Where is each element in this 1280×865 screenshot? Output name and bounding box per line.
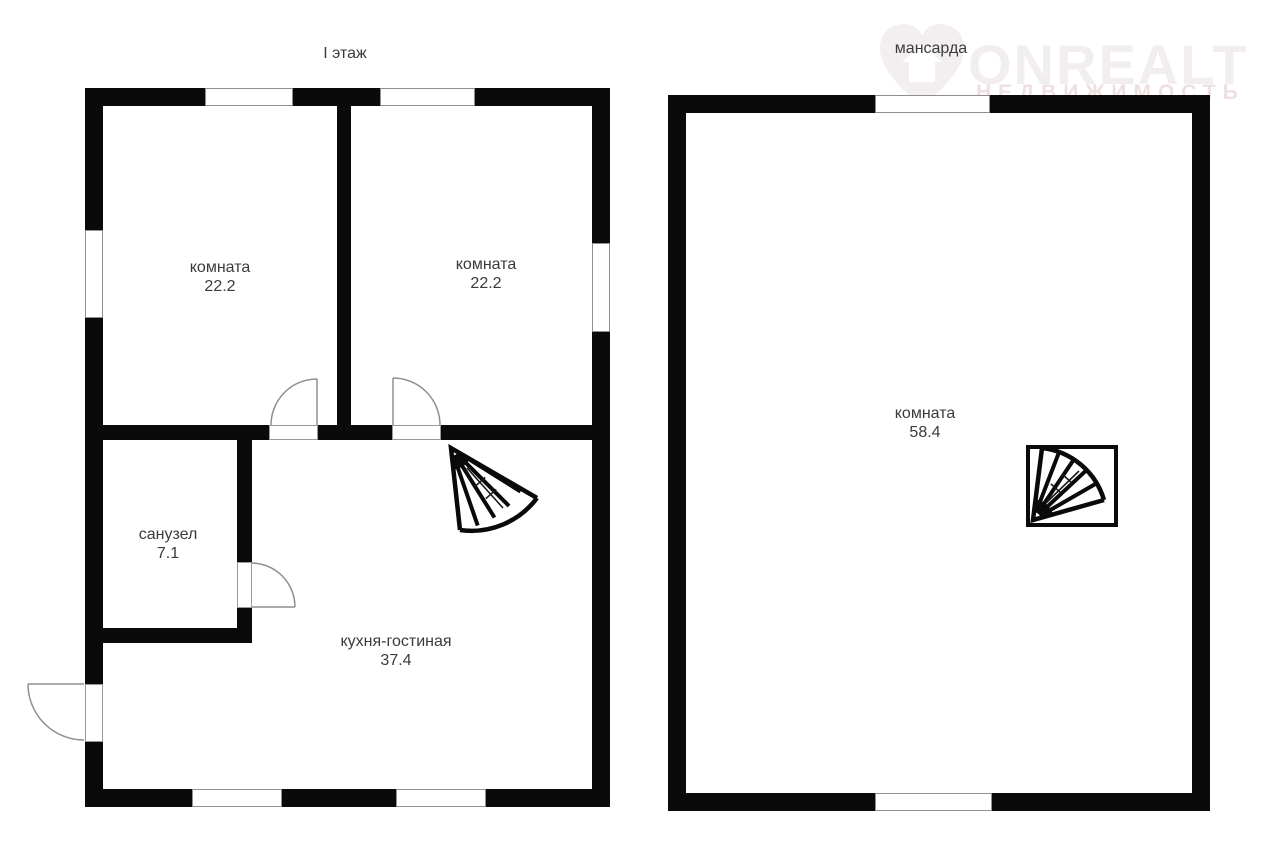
floorplan-canvas: ONREALT НЕДВИЖИМОСТЬ I этаж мансарда <box>0 0 1280 865</box>
floor-title-first: I этаж <box>285 45 405 63</box>
wall-right <box>1192 95 1210 811</box>
winder-staircase-boxed-icon <box>1026 445 1118 527</box>
attic-floor-plan: комната 58.4 <box>0 0 1280 865</box>
room-label-komnata-attic: комната 58.4 <box>895 404 956 442</box>
floor-title-attic: мансарда <box>881 40 981 58</box>
room-name: комната <box>895 404 956 423</box>
window-bottom <box>875 793 992 811</box>
window-top <box>875 95 990 113</box>
wall-left <box>668 95 686 811</box>
room-area: 58.4 <box>895 423 956 442</box>
